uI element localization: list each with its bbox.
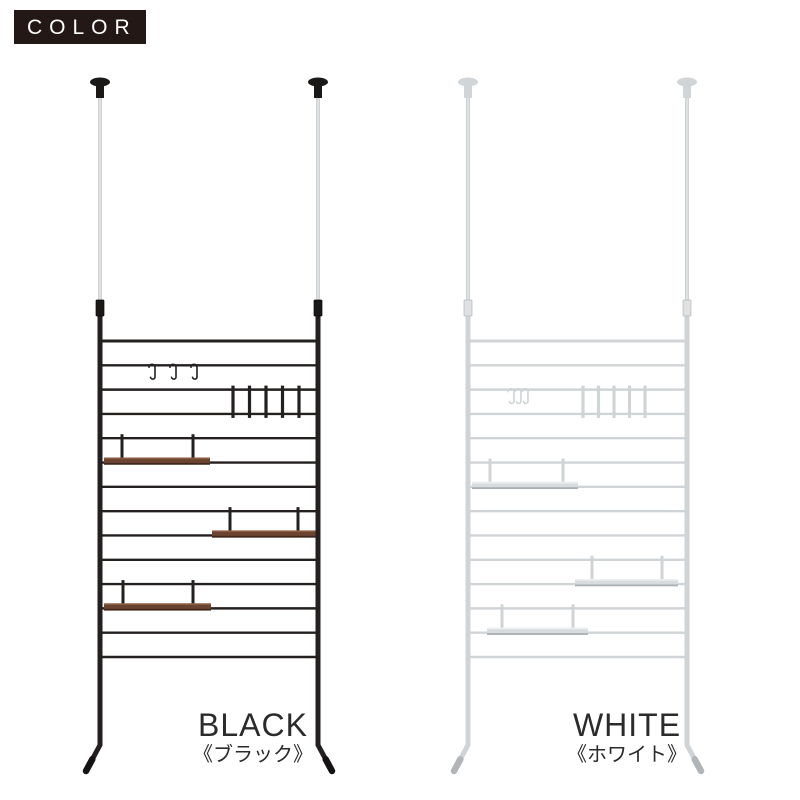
- pole-connector: [683, 300, 691, 316]
- shelf-post: [229, 507, 232, 530]
- white-rack: [454, 78, 701, 772]
- frame-pole: [685, 306, 690, 746]
- s-hook: [515, 389, 521, 404]
- shelf-post: [562, 459, 565, 482]
- shelf-post: [192, 580, 195, 603]
- hook-panel-slat: [597, 386, 600, 418]
- shelf-post: [297, 507, 300, 530]
- shelf-board-front-edge: [104, 609, 211, 611]
- shelf-board-top-edge: [104, 603, 211, 605]
- pole-connector: [314, 300, 322, 316]
- shelf-board-front-edge: [575, 584, 678, 586]
- hook-panel-slat: [628, 386, 631, 418]
- s-hook: [149, 364, 155, 379]
- tension-pole-highlight: [317, 98, 318, 306]
- shelf-post: [501, 604, 504, 627]
- shelf-post: [591, 556, 594, 579]
- shelf-post: [121, 434, 124, 457]
- rack-foot-cap: [454, 759, 460, 771]
- s-hook: [170, 364, 176, 379]
- pole-connector: [464, 300, 472, 316]
- ceiling-cap: [308, 78, 328, 87]
- hook-panel-slat: [643, 386, 646, 418]
- ceiling-cap: [90, 78, 110, 87]
- shelf-post: [572, 604, 575, 627]
- shelf-post: [489, 459, 492, 482]
- product-name-white-jp: 《ホワイト》: [507, 745, 747, 765]
- shelf-board-top-edge: [487, 628, 588, 630]
- hook-panel-slat: [281, 386, 284, 418]
- ceiling-cap: [677, 78, 697, 87]
- black-rack: [86, 78, 332, 772]
- shelf-board-front-edge: [212, 536, 318, 538]
- rack-foot-cap: [86, 759, 92, 771]
- s-hook: [508, 389, 514, 404]
- product-name-black: BLACK: [133, 709, 373, 741]
- product-name-white: WHITE: [507, 709, 747, 741]
- hook-panel-slat: [231, 386, 234, 418]
- shelf-board-front-edge: [472, 487, 578, 489]
- tension-pole-highlight: [467, 98, 468, 306]
- frame-pole: [316, 306, 321, 746]
- hook-panel-slat: [248, 386, 251, 418]
- shelf-board-front-edge: [104, 463, 210, 465]
- shelf-board-top-edge: [575, 579, 678, 581]
- shelf-board-top-edge: [104, 458, 210, 460]
- shelf-post: [192, 434, 195, 457]
- s-hook: [191, 364, 197, 379]
- hook-panel-slat: [297, 386, 300, 418]
- tension-pole-highlight: [686, 98, 687, 306]
- hook-panel-slat: [264, 386, 267, 418]
- shelf-board-top-edge: [212, 530, 318, 532]
- shelf-post: [122, 580, 125, 603]
- shelf-board-front-edge: [487, 633, 588, 635]
- product-name-black-jp: 《ブラック》: [133, 745, 373, 765]
- frame-pole: [466, 306, 471, 746]
- s-hook: [522, 389, 528, 404]
- hook-panel-slat: [612, 386, 615, 418]
- shelf-post: [661, 556, 664, 579]
- shelf-board-top-edge: [472, 482, 578, 484]
- tension-pole-highlight: [99, 98, 100, 306]
- pole-connector: [96, 300, 104, 316]
- product-color-comparison: COLOR BLACK 《ブラック》 WHITE 《ホワイト》: [0, 0, 800, 800]
- frame-pole: [98, 306, 103, 746]
- hook-panel-slat: [581, 386, 584, 418]
- product-photos: [0, 0, 800, 800]
- ceiling-cap: [458, 78, 478, 87]
